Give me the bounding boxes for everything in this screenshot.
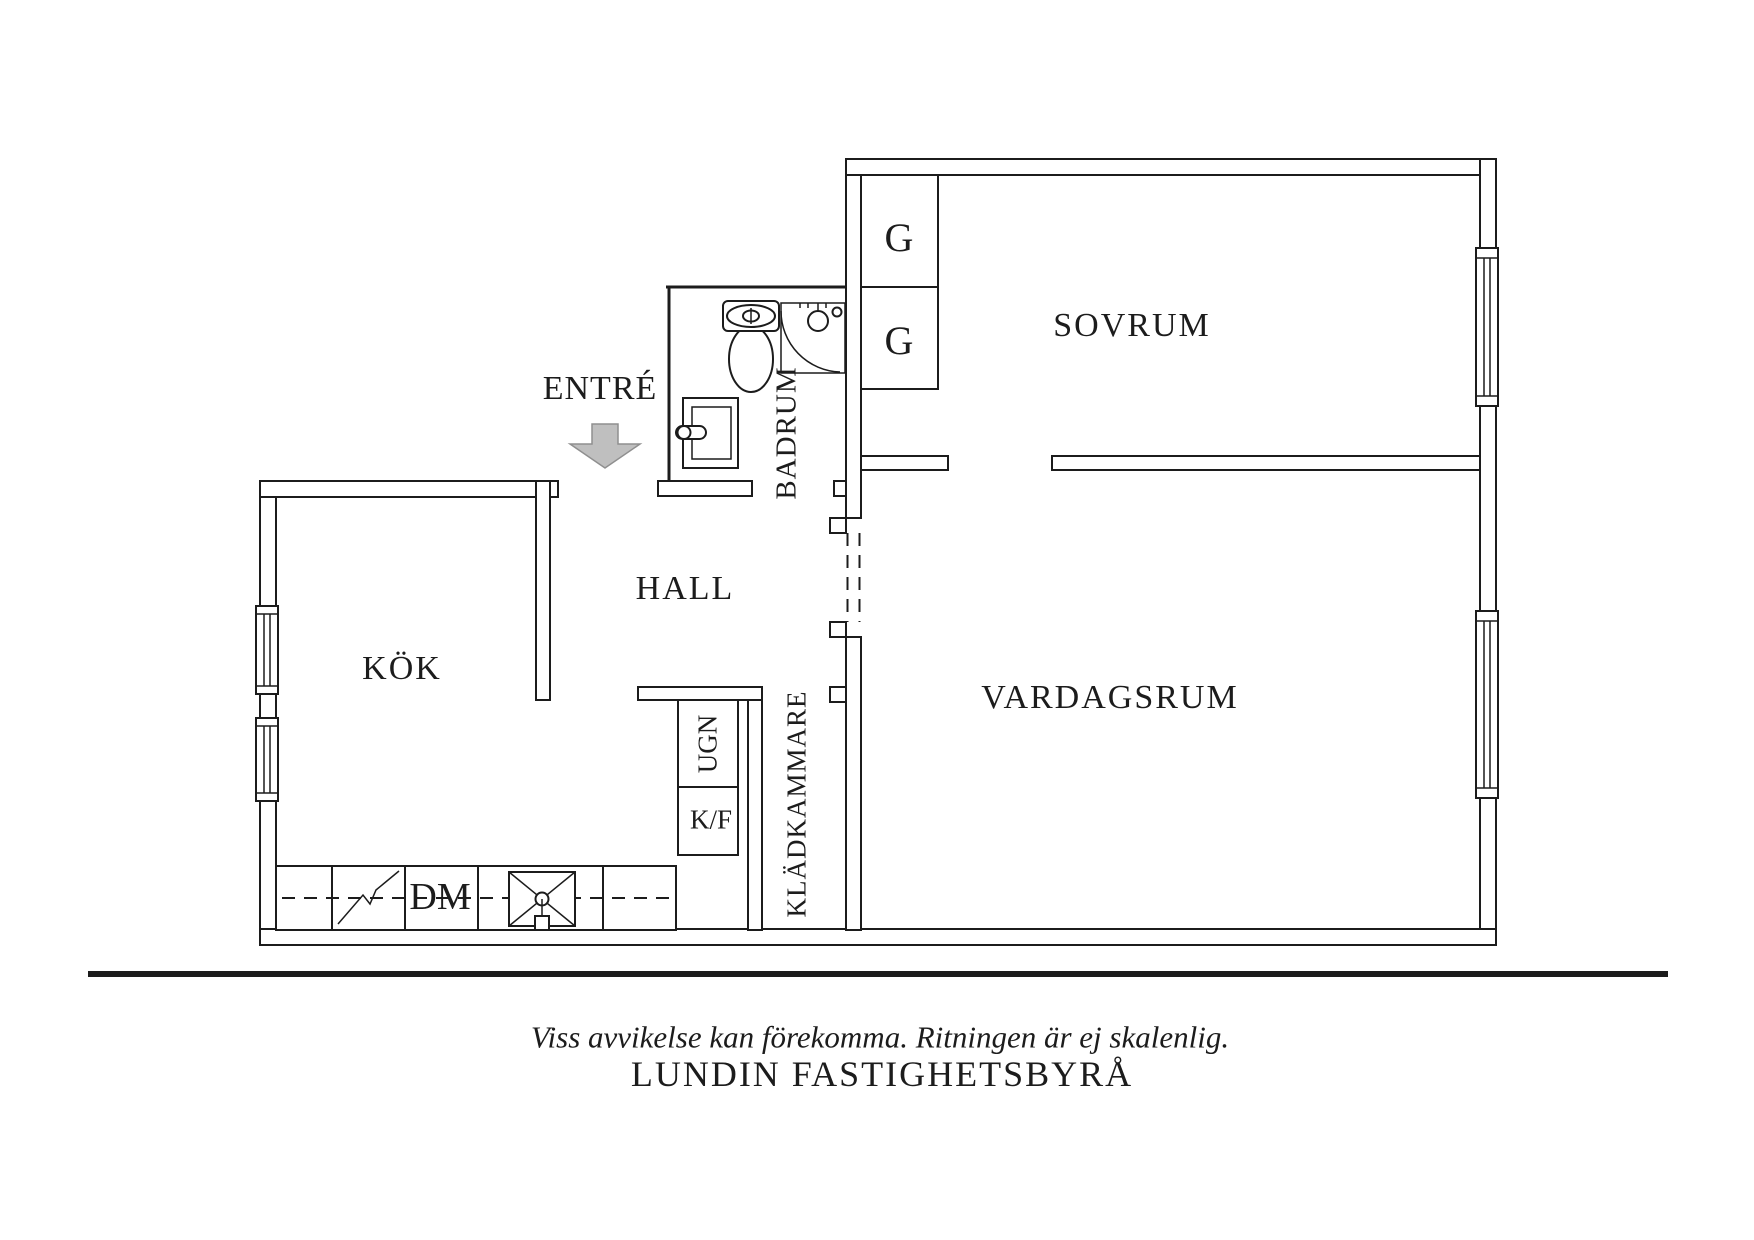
livingroom-window xyxy=(1476,611,1498,798)
kitchen-counter xyxy=(276,866,676,930)
disclaimer-text: Viss avvikelse kan förekomma. Ritningen … xyxy=(531,1022,1229,1053)
entry-arrow-icon xyxy=(570,424,640,468)
bedroom-window xyxy=(1476,248,1498,406)
oven-label: UGN xyxy=(695,715,722,774)
room-label-kok: KÖK xyxy=(362,652,442,686)
wardrobe-label-top: G xyxy=(885,218,914,258)
room-label-badrum: BADRUM xyxy=(773,366,802,499)
room-label-sovrum: SOVRUM xyxy=(1053,309,1210,343)
kitchen-window-bottom xyxy=(256,718,278,801)
shower-icon xyxy=(781,303,845,373)
kitchen-window-top xyxy=(256,606,278,694)
dishwasher-label: DM xyxy=(409,878,470,916)
sink-basin-icon xyxy=(676,398,738,468)
stove-symbol xyxy=(509,872,575,930)
passage-dashed-opening xyxy=(848,533,860,622)
footer-separator-line xyxy=(88,971,1668,977)
fridge-freezer-label: K/F xyxy=(690,807,732,834)
floor-plan-page: SOVRUM VARDAGSRUM KÖK HALL BADRUM KLÄDKA… xyxy=(0,0,1754,1240)
room-label-kladkammare: KLÄDKAMMARE xyxy=(784,691,811,918)
room-label-vardagsrum: VARDAGSRUM xyxy=(981,681,1238,715)
bathroom-fixtures xyxy=(676,301,845,468)
entrance-label: ENTRÉ xyxy=(543,372,658,406)
wardrobe-label-bottom: G xyxy=(885,321,914,361)
room-label-hall: HALL xyxy=(636,572,735,606)
agency-name: LUNDIN FASTIGHETSBYRÅ xyxy=(631,1056,1133,1092)
